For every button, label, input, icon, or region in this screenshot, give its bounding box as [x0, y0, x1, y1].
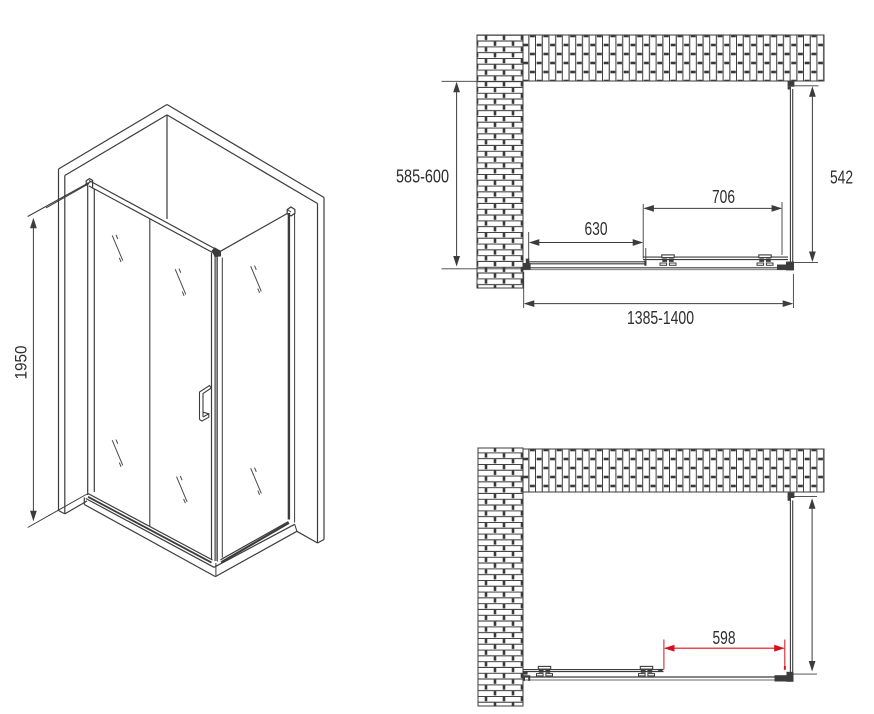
svg-text:1385-1400: 1385-1400	[627, 308, 694, 328]
svg-text:706: 706	[712, 187, 735, 207]
svg-text:598: 598	[713, 628, 736, 648]
svg-text:1950: 1950	[12, 346, 31, 380]
svg-text:585-600: 585-600	[396, 167, 449, 187]
svg-text:630: 630	[585, 219, 608, 239]
svg-text:542: 542	[830, 168, 853, 188]
